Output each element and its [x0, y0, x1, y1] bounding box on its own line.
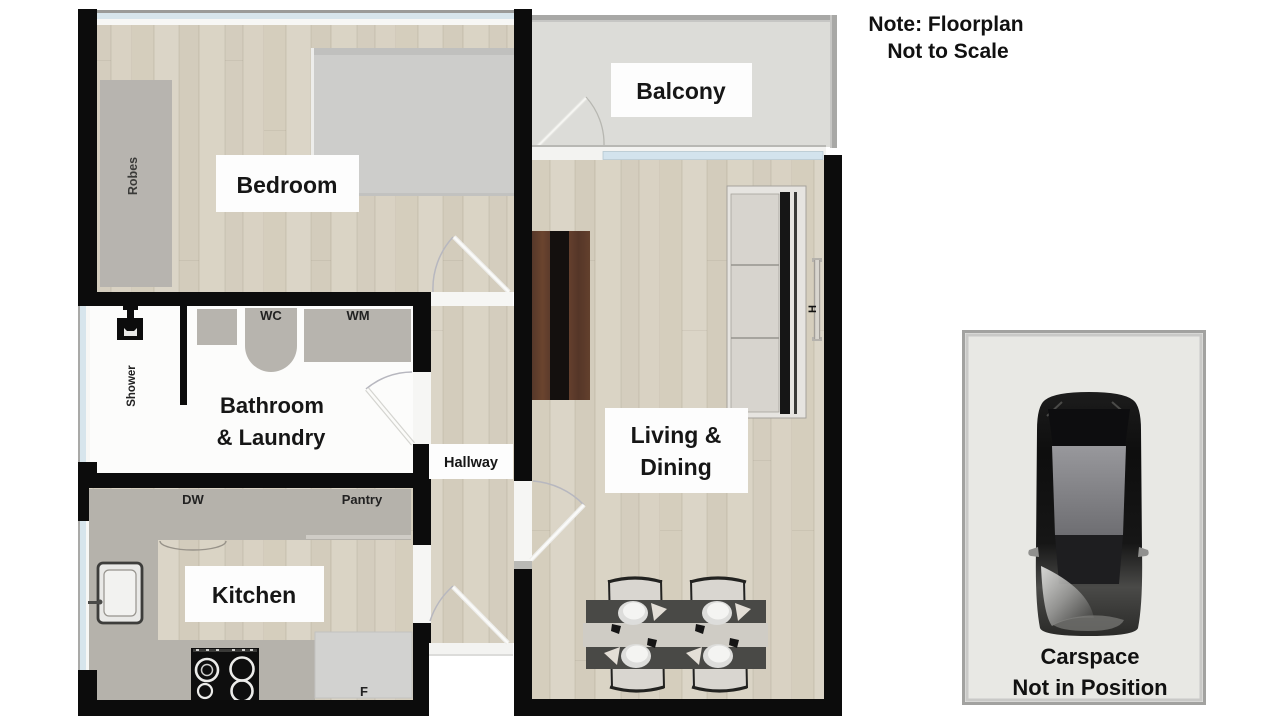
svg-text:Kitchen: Kitchen [212, 582, 296, 608]
svg-text:WC: WC [260, 308, 282, 323]
svg-text:Dining: Dining [640, 454, 712, 480]
svg-text:Hallway: Hallway [444, 455, 498, 471]
svg-text:Bedroom: Bedroom [237, 172, 338, 198]
svg-text:& Laundry: & Laundry [217, 425, 327, 450]
svg-text:Living &: Living & [631, 422, 722, 448]
svg-text:DW: DW [182, 492, 204, 507]
svg-text:Bathroom: Bathroom [220, 393, 324, 418]
svg-text:Not to Scale: Not to Scale [887, 40, 1008, 63]
svg-text:Pantry: Pantry [342, 492, 383, 507]
svg-text:H: H [807, 305, 819, 313]
svg-text:Not in Position: Not in Position [1012, 675, 1167, 700]
svg-text:Robes: Robes [126, 157, 140, 195]
svg-text:WM: WM [346, 308, 369, 323]
svg-text:Balcony: Balcony [636, 78, 726, 104]
svg-text:Shower: Shower [126, 365, 138, 407]
svg-text:Note: Floorplan: Note: Floorplan [868, 13, 1023, 36]
svg-text:Carspace: Carspace [1040, 644, 1139, 669]
svg-text:F: F [360, 684, 368, 699]
